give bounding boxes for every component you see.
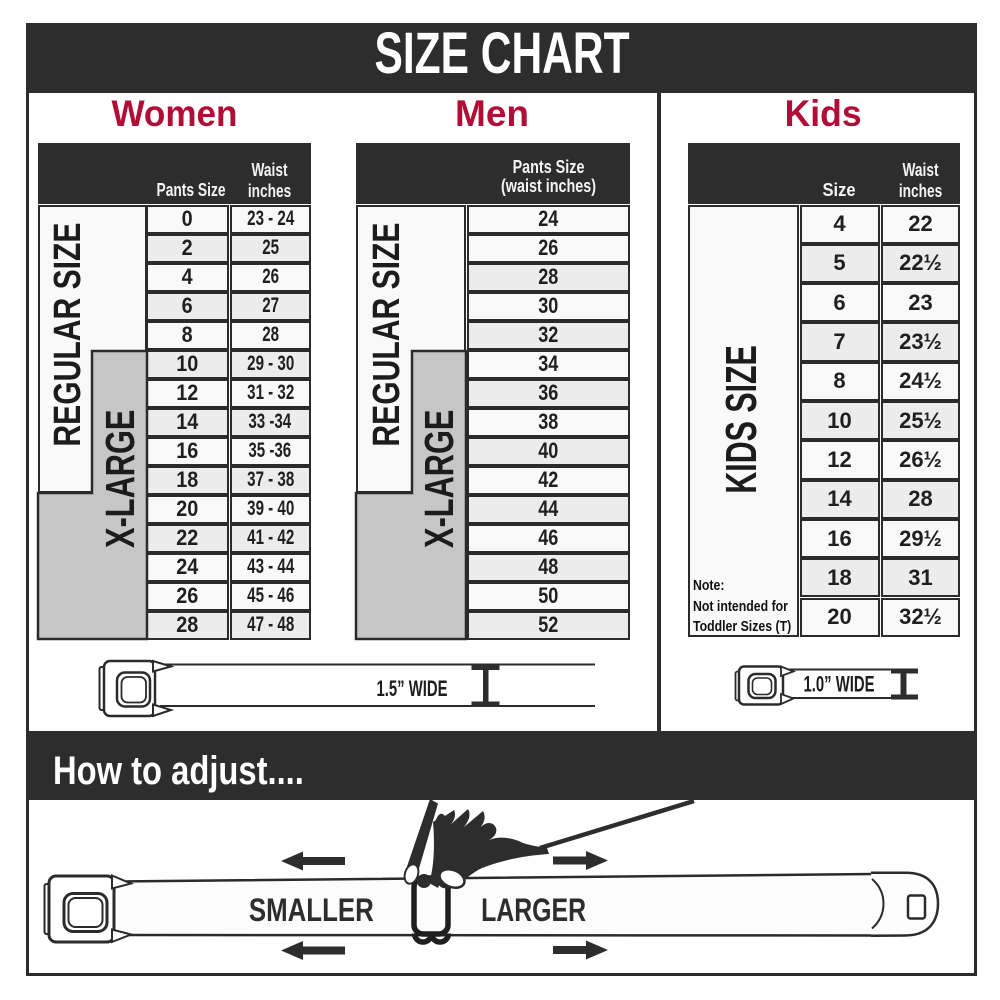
- svg-text:1.5” WIDE: 1.5” WIDE: [377, 676, 448, 701]
- svg-text:1.0” WIDE: 1.0” WIDE: [804, 672, 875, 697]
